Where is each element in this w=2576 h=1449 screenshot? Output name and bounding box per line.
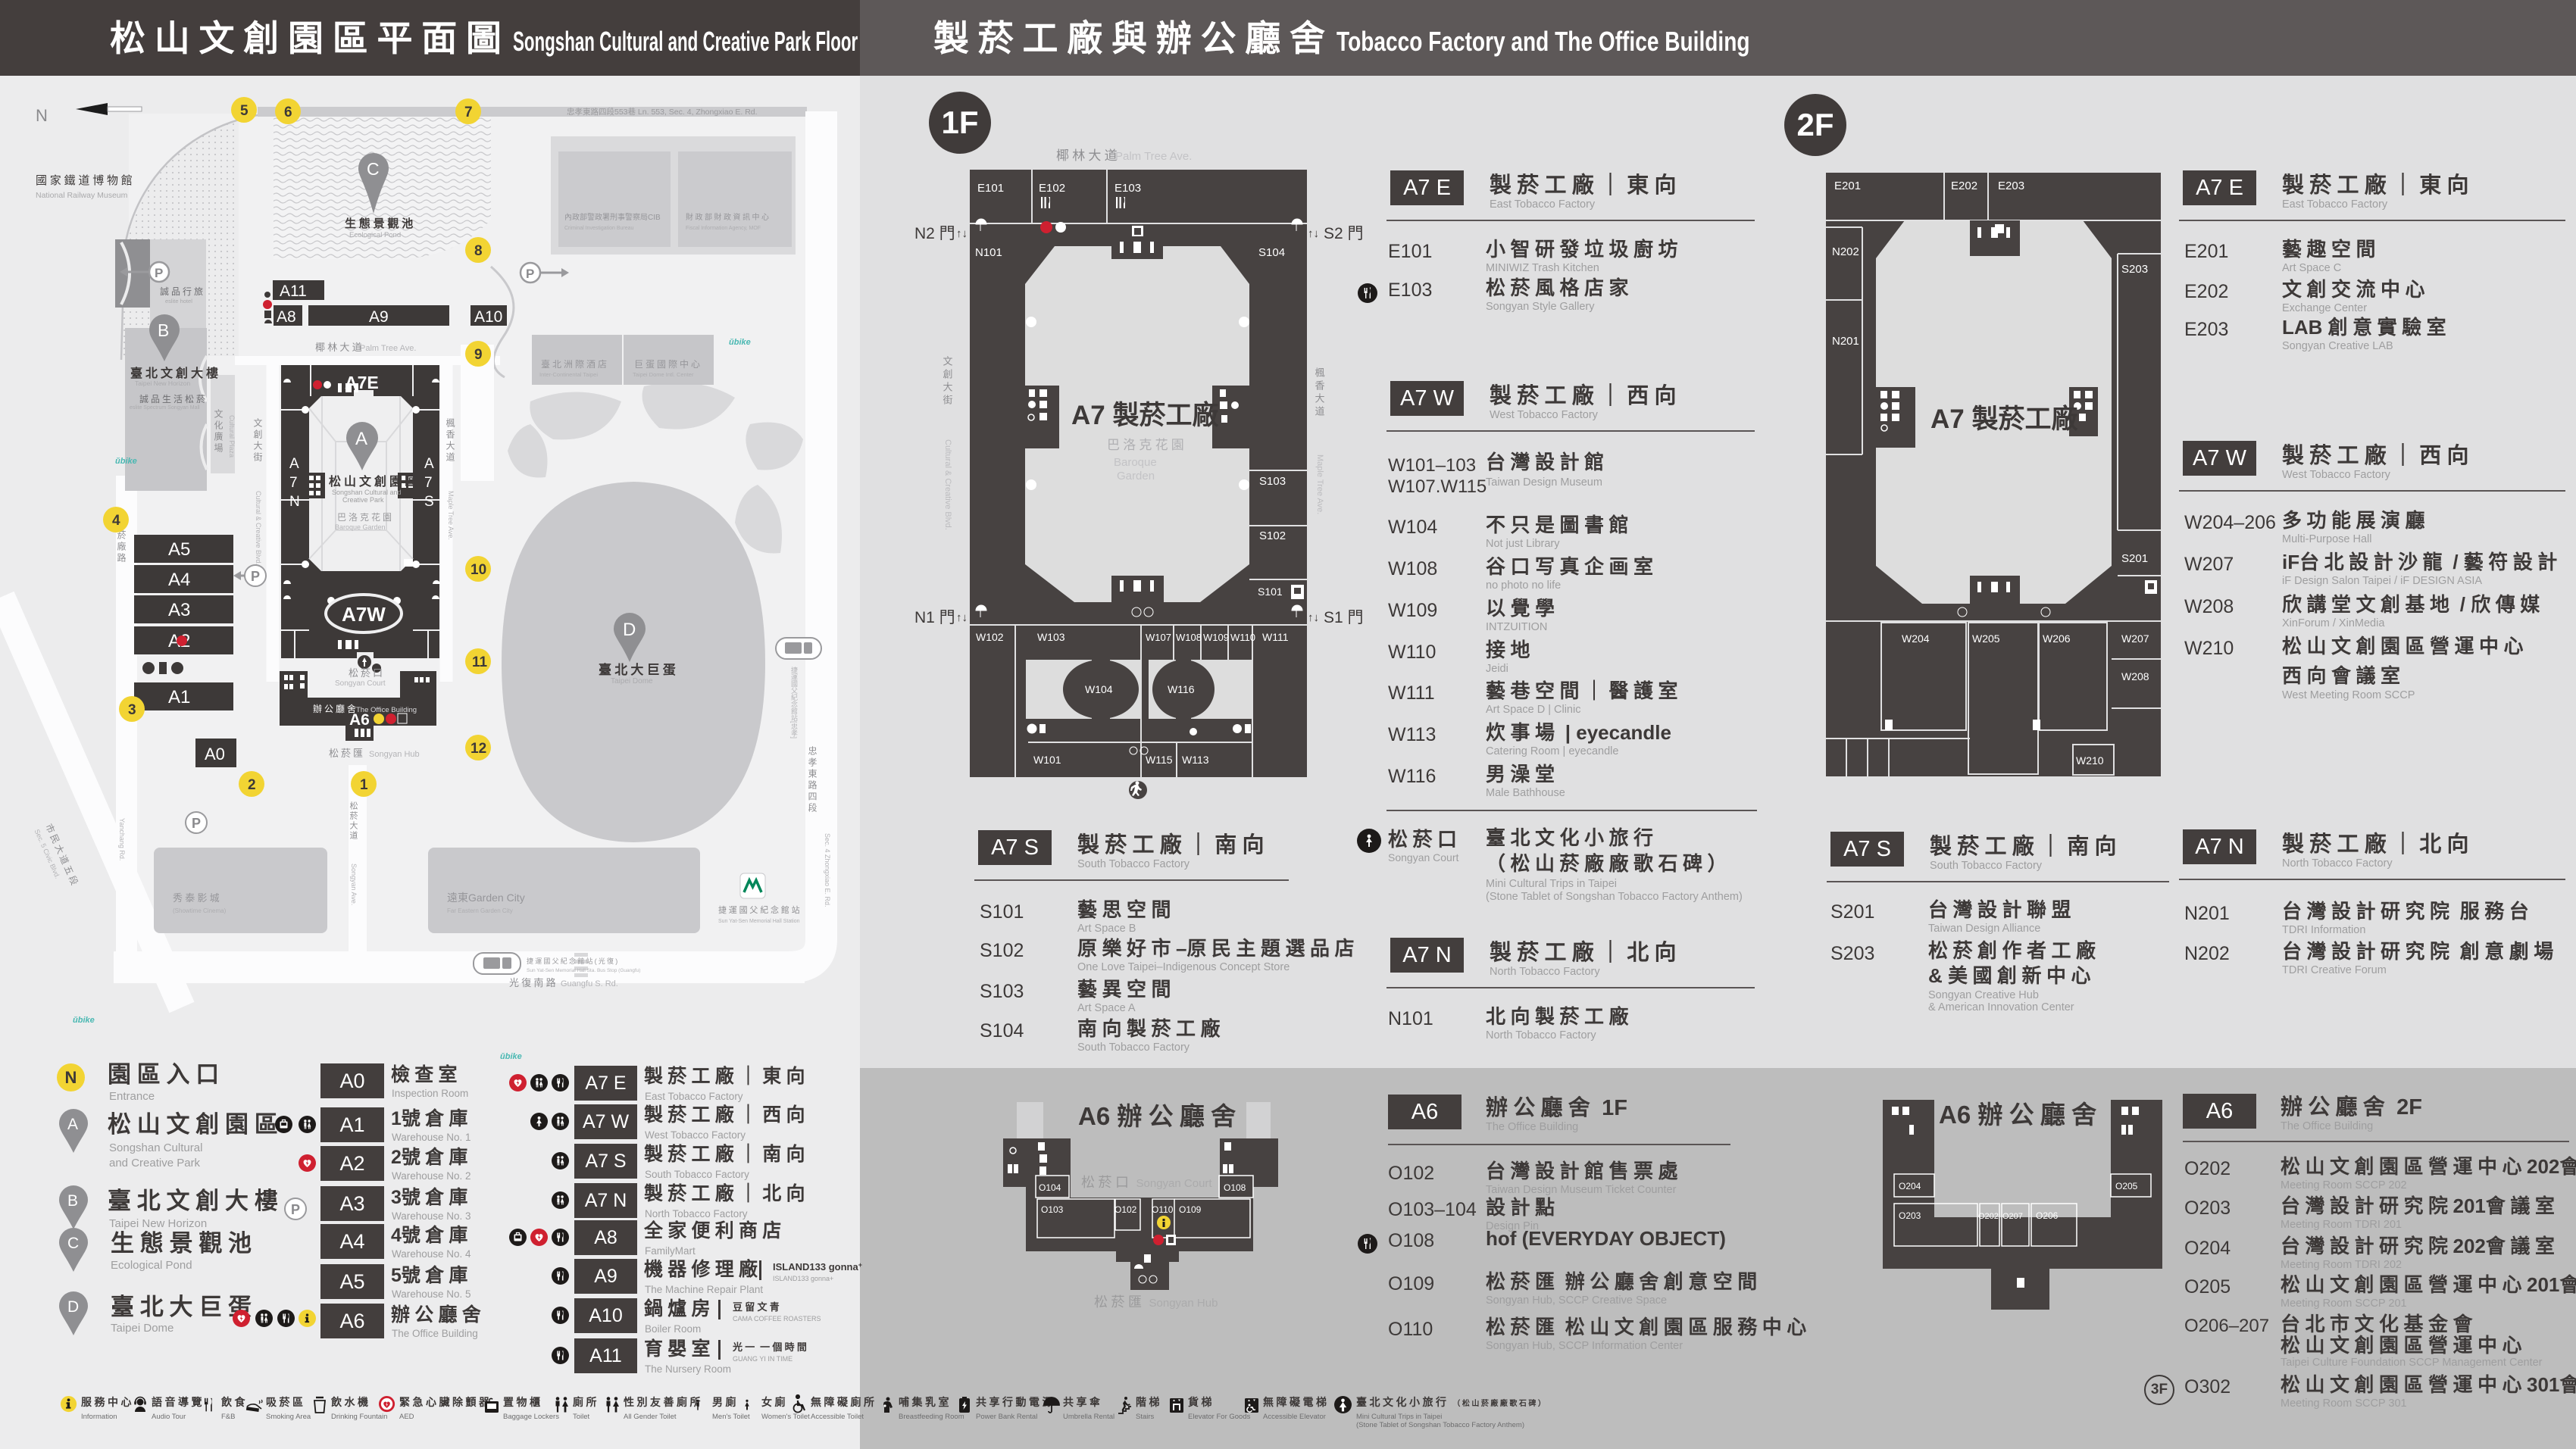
svg-text:12: 12 <box>470 741 486 757</box>
svg-text:Songyan Court: Songyan Court <box>335 679 386 688</box>
svg-text:Songshan Cultural and: Songshan Cultural and <box>332 489 402 496</box>
svg-text:生態景觀池: 生態景觀池 <box>345 217 416 230</box>
svg-text:O104: O104 <box>1039 1182 1061 1193</box>
svg-text:B: B <box>67 1192 78 1210</box>
svg-text:ǔbike: ǔbike <box>115 457 137 466</box>
svg-text:臺北文創大樓: 臺北文創大樓 <box>130 366 221 380</box>
svg-text:A8: A8 <box>277 308 296 326</box>
svg-text:Taipei New Horizon: Taipei New Horizon <box>135 379 190 387</box>
svg-text:6: 6 <box>284 105 292 120</box>
svg-text:誠品生活松菸: 誠品生活松菸 <box>139 394 208 404</box>
svg-text:O108: O108 <box>1224 1182 1246 1193</box>
svg-text:Taipei Dome: Taipei Dome <box>611 677 653 685</box>
svg-text:Songyan Ave.: Songyan Ave. <box>350 863 358 905</box>
svg-text:S101: S101 <box>1258 586 1283 598</box>
svg-text:O205: O205 <box>2115 1181 2138 1191</box>
svg-text:C: C <box>367 159 380 179</box>
svg-text:W208: W208 <box>2121 670 2149 682</box>
svg-text:W102: W102 <box>976 631 1004 643</box>
svg-text:N201: N201 <box>1832 335 1859 348</box>
svg-text:捷運國父紀念館站[忠孝]: 捷運國父紀念館站[忠孝] <box>790 666 798 739</box>
svg-text:E102: E102 <box>1039 182 1065 195</box>
svg-text:S103: S103 <box>1259 475 1286 488</box>
svg-text:Palm Tree Ave.: Palm Tree Ave. <box>360 344 416 353</box>
svg-text:Sec. 4 Zhongxiao E. Rd.: Sec. 4 Zhongxiao E. Rd. <box>824 833 831 907</box>
svg-text:C: C <box>67 1235 79 1252</box>
svg-text:Maple Tree Ave.: Maple Tree Ave. <box>447 491 455 540</box>
svg-text:E202: E202 <box>1951 180 1977 192</box>
svg-text:4: 4 <box>112 513 120 529</box>
svg-text:3: 3 <box>128 702 136 718</box>
svg-text:D: D <box>67 1298 79 1316</box>
svg-text:W207: W207 <box>2121 632 2149 645</box>
svg-text:Baroque: Baroque <box>1114 456 1157 469</box>
svg-text:捷運國父紀念館站: 捷運國父紀念館站 <box>718 904 802 915</box>
svg-text:O203: O203 <box>1899 1210 1921 1221</box>
svg-text:S2 門: S2 門 <box>1324 225 1364 242</box>
svg-text:Songyan Hub: Songyan Hub <box>369 750 420 759</box>
svg-text:A1: A1 <box>168 687 190 707</box>
svg-text:W101: W101 <box>1033 754 1061 766</box>
svg-text:W109: W109 <box>1203 632 1229 643</box>
svg-text:巴洛克花園: 巴洛克花園 <box>337 511 394 523</box>
svg-text:1: 1 <box>360 777 368 793</box>
svg-text:S203: S203 <box>2121 263 2148 276</box>
svg-text:S102: S102 <box>1259 529 1286 542</box>
svg-text:O110: O110 <box>1152 1204 1174 1215</box>
svg-text:P: P <box>291 1202 300 1217</box>
svg-text:W206: W206 <box>2043 632 2071 645</box>
svg-text:A: A <box>67 1116 78 1133</box>
svg-text:eslite Spectrum Songyan Mall: eslite Spectrum Songyan Mall <box>130 405 200 411</box>
svg-text:W210: W210 <box>2076 754 2104 767</box>
svg-text:A: A <box>355 429 367 449</box>
svg-text:W115: W115 <box>1146 754 1173 766</box>
svg-text:誠品行旅: 誠品行旅 <box>160 286 205 297</box>
svg-text:Fiscal Information Agency, MOF: Fiscal Information Agency, MOF <box>686 226 761 231</box>
svg-text:松菸大道: 松菸大道 <box>349 801 358 841</box>
svg-text:文創大街: 文創大街 <box>252 417 263 464</box>
svg-text:7: 7 <box>464 105 473 120</box>
svg-text:11: 11 <box>472 654 488 670</box>
svg-text:Palm Tree Ave.: Palm Tree Ave. <box>1115 150 1192 163</box>
svg-text:↑↓: ↑↓ <box>956 227 968 240</box>
svg-text:光復南路: 光復南路 <box>509 977 558 988</box>
svg-text:A11: A11 <box>280 283 307 300</box>
svg-text:D: D <box>623 620 636 640</box>
svg-text:Sun Yat-Sen Memorial Hall Stat: Sun Yat-Sen Memorial Hall Station <box>718 919 800 924</box>
svg-text:W103: W103 <box>1037 631 1065 643</box>
svg-text:P: P <box>526 267 534 281</box>
svg-text:N101: N101 <box>975 246 1002 259</box>
svg-text:E203: E203 <box>1998 180 2024 192</box>
svg-text:↑↓: ↑↓ <box>1308 611 1319 624</box>
svg-text:Criminal Investigation Bureau: Criminal Investigation Bureau <box>564 226 634 231</box>
svg-text:Baroque Garden: Baroque Garden <box>335 523 386 531</box>
svg-text:W110: W110 <box>1230 632 1255 643</box>
svg-text:W104: W104 <box>1085 683 1113 695</box>
svg-text:Guangfu S. Rd.: Guangfu S. Rd. <box>561 979 618 988</box>
svg-text:松菸口: 松菸口 <box>349 667 385 679</box>
svg-text:Inter-Continental Taipei: Inter-Continental Taipei <box>539 371 598 378</box>
svg-text:eslite hotel: eslite hotel <box>165 298 192 304</box>
svg-text:A7 製菸工廠: A7 製菸工廠 <box>1071 400 1218 430</box>
svg-text:N: N <box>36 106 48 125</box>
svg-text:O206: O206 <box>2036 1210 2059 1221</box>
svg-text:O102: O102 <box>1114 1204 1137 1215</box>
svg-text:Cultural Plaza: Cultural Plaza <box>228 415 236 457</box>
svg-text:國家鐵道博物館: 國家鐵道博物館 <box>36 173 136 187</box>
svg-text:B: B <box>158 320 169 340</box>
svg-text:S104: S104 <box>1258 246 1285 259</box>
svg-text:N1 門: N1 門 <box>914 609 955 626</box>
svg-text:Far Eastern Garden City: Far Eastern Garden City <box>447 907 513 914</box>
svg-text:椰林大道: 椰林大道 <box>315 342 364 353</box>
svg-text:松菸匯: 松菸匯 <box>329 748 365 759</box>
svg-text:Taipei Dome Intl. Center: Taipei Dome Intl. Center <box>633 371 694 378</box>
svg-text:A4: A4 <box>168 570 190 590</box>
svg-text:忠孝東路四段553巷 Ln. 553, Sec. 4, Z: 忠孝東路四段553巷 Ln. 553, Sec. 4, Zhongxiao E.… <box>567 107 758 117</box>
svg-text:N202: N202 <box>1832 245 1859 258</box>
svg-text:捷運國父紀念館站(光復): 捷運國父紀念館站(光復) <box>527 957 619 965</box>
svg-text:秀泰影城: 秀泰影城 <box>173 892 222 904</box>
svg-text:Cultural & Creative Blvd.: Cultural & Creative Blvd. <box>255 491 262 565</box>
svg-text:菸廠路: 菸廠路 <box>116 530 127 564</box>
svg-text:A7 製菸工廠: A7 製菸工廠 <box>1930 404 2077 434</box>
svg-text:ǔbike: ǔbike <box>500 1052 522 1061</box>
svg-text:W205: W205 <box>1972 632 2000 645</box>
svg-text:Garden: Garden <box>1117 470 1155 482</box>
svg-text:椰林大道: 椰林大道 <box>1056 148 1121 163</box>
svg-text:9: 9 <box>474 347 483 363</box>
svg-text:Creative Park: Creative Park <box>342 496 384 504</box>
svg-text:P: P <box>155 266 163 280</box>
svg-text:內政部警政署刑事警察局CIB: 內政部警政署刑事警察局CIB <box>564 212 661 222</box>
svg-text:巴洛克花園: 巴洛克花園 <box>1107 438 1187 452</box>
svg-text:Maple Tree Ave.: Maple Tree Ave. <box>1315 454 1324 514</box>
svg-text:O109: O109 <box>1179 1204 1202 1215</box>
svg-text:財政部財政資訊中心: 財政部財政資訊中心 <box>686 212 771 222</box>
svg-text:W116: W116 <box>1168 683 1195 695</box>
svg-text:E103: E103 <box>1114 182 1141 195</box>
svg-text:W107: W107 <box>1146 632 1171 643</box>
svg-text:2: 2 <box>248 777 256 793</box>
svg-text:O202: O202 <box>1978 1212 1999 1221</box>
svg-text:National Railway Museum: National Railway Museum <box>36 191 128 200</box>
svg-text:臺北洲際酒店: 臺北洲際酒店 <box>541 358 609 370</box>
svg-text:A6: A6 <box>349 711 370 729</box>
svg-text:A9: A9 <box>369 308 389 326</box>
svg-text:臺北大巨蛋: 臺北大巨蛋 <box>599 662 679 677</box>
svg-text:8: 8 <box>474 243 483 259</box>
svg-text:文創大街: 文創大街 <box>942 356 953 408</box>
svg-text:W113: W113 <box>1182 754 1209 766</box>
svg-text:S1 門: S1 門 <box>1324 609 1364 626</box>
svg-text:A3: A3 <box>168 600 190 620</box>
svg-text:楓香大道: 楓香大道 <box>1314 367 1325 419</box>
svg-text:↑↓: ↑↓ <box>956 611 968 624</box>
svg-text:A0: A0 <box>205 745 225 764</box>
svg-text:忠孝東路四段: 忠孝東路四段 <box>807 746 818 814</box>
svg-text:P: P <box>251 569 260 584</box>
svg-text:E201: E201 <box>1834 180 1861 192</box>
svg-text:E101: E101 <box>977 182 1004 195</box>
svg-text:ǔbike: ǔbike <box>73 1016 95 1025</box>
svg-text:10: 10 <box>470 562 486 578</box>
svg-text:松山文創園區: 松山文創園區 <box>329 474 420 489</box>
svg-text:A5: A5 <box>168 539 190 560</box>
svg-text:Cultural & Creative Blvd.: Cultural & Creative Blvd. <box>943 439 952 530</box>
svg-text:遠東Garden City: 遠東Garden City <box>447 892 525 904</box>
svg-text:S201: S201 <box>2121 552 2148 565</box>
svg-text:(Showtime Cinema): (Showtime Cinema) <box>173 907 227 914</box>
svg-text:O207: O207 <box>2002 1212 2023 1221</box>
svg-text:W111: W111 <box>1262 631 1289 643</box>
svg-text:N2 門: N2 門 <box>914 225 955 242</box>
svg-text:A10: A10 <box>474 308 502 326</box>
svg-text:Yanchang Rd.: Yanchang Rd. <box>118 818 126 860</box>
svg-text:楓香大道: 楓香大道 <box>445 417 455 464</box>
svg-text:A7W: A7W <box>342 603 386 626</box>
svg-text:Sun Yat-Sen Memorial Hall Sta.: Sun Yat-Sen Memorial Hall Sta. Bus Stop … <box>527 968 640 973</box>
svg-text:W204: W204 <box>1902 632 1930 645</box>
svg-text:O103: O103 <box>1041 1204 1064 1215</box>
svg-text:O204: O204 <box>1899 1181 1921 1191</box>
svg-text:↑↓: ↑↓ <box>1308 227 1319 240</box>
svg-text:P: P <box>192 816 201 831</box>
svg-text:5: 5 <box>240 103 249 119</box>
svg-text:Ecological Pond: Ecological Pond <box>349 231 401 239</box>
svg-text:ǔbike: ǔbike <box>729 338 751 347</box>
svg-text:W108: W108 <box>1176 632 1202 643</box>
svg-text:巨蛋國際中心: 巨蛋國際中心 <box>634 358 702 370</box>
svg-text:文化廣場: 文化廣場 <box>213 408 224 454</box>
